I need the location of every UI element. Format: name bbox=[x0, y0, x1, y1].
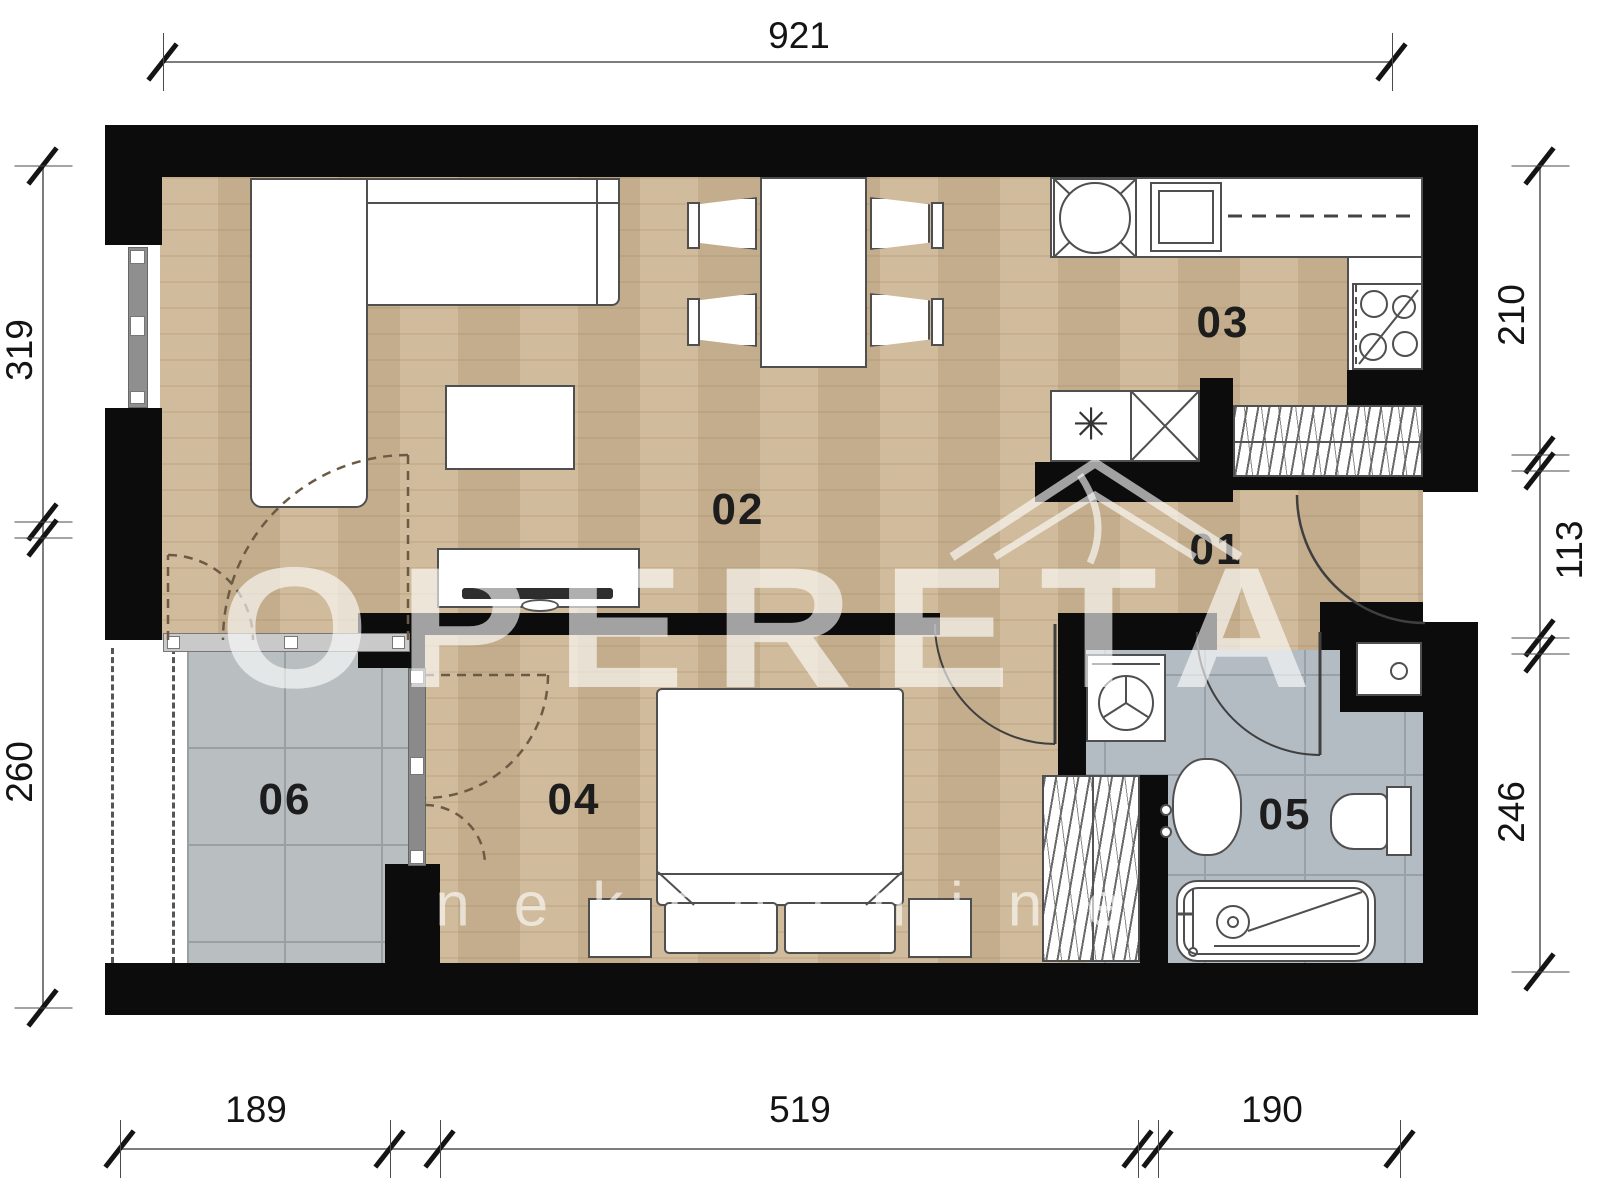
dim-top-921: 921 bbox=[768, 15, 830, 57]
floor-plan: ✳ bbox=[0, 0, 1600, 1193]
bedroom-terrace-arc-large bbox=[425, 675, 548, 798]
bathroom-door-arc bbox=[1197, 632, 1320, 755]
room-label-03: 03 bbox=[1197, 298, 1250, 348]
dim-right-246: 246 bbox=[1491, 781, 1533, 843]
dim-bottom-190: 190 bbox=[1241, 1089, 1303, 1131]
terrace-door-arc-small bbox=[168, 555, 253, 640]
room-label-04: 04 bbox=[548, 775, 601, 825]
dim-left-260: 260 bbox=[0, 741, 41, 803]
dim-line-right bbox=[1539, 166, 1541, 972]
dim-line-bottom bbox=[120, 1148, 1400, 1150]
dim-line-top bbox=[163, 61, 1392, 63]
room-label-06: 06 bbox=[259, 775, 312, 825]
dim-left-319: 319 bbox=[0, 319, 41, 381]
entrance-door-arc bbox=[1297, 495, 1425, 623]
dim-bottom-519: 519 bbox=[769, 1089, 831, 1131]
door-arcs-layer bbox=[0, 0, 1600, 1193]
watermark-roof-logo bbox=[940, 445, 1260, 565]
dim-right-210: 210 bbox=[1491, 284, 1533, 346]
room-label-02: 02 bbox=[712, 485, 765, 535]
room-label-05: 05 bbox=[1259, 790, 1312, 840]
bedroom-terrace-arc-small bbox=[425, 805, 485, 865]
dim-right-113: 113 bbox=[1549, 521, 1591, 580]
dim-line-left bbox=[42, 166, 44, 1008]
bedroom-door-arc bbox=[935, 624, 1055, 744]
terrace-door-arc-large bbox=[223, 455, 408, 640]
dim-bottom-189: 189 bbox=[225, 1089, 287, 1131]
